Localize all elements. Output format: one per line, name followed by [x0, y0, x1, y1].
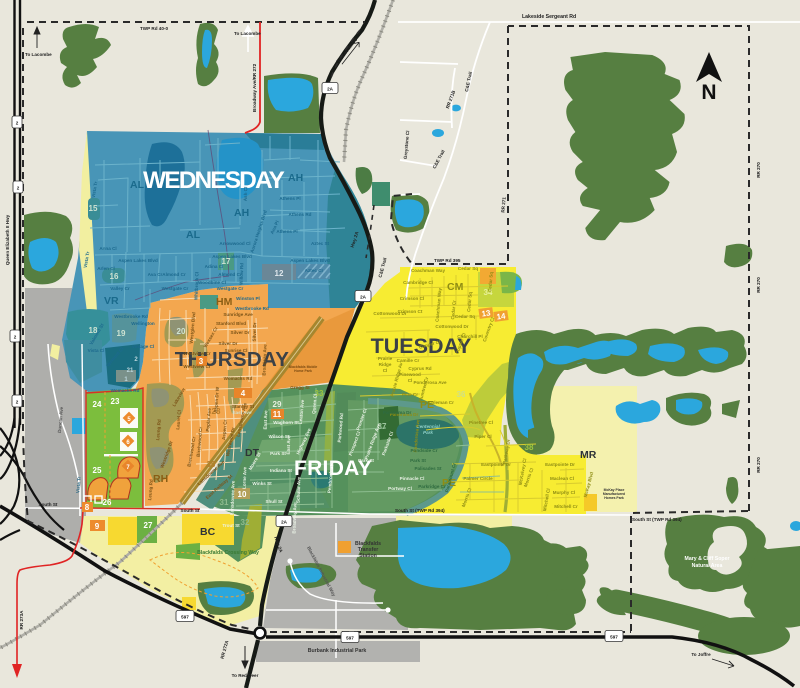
svg-text:Cottonwood Dr: Cottonwood Dr — [373, 311, 406, 316]
svg-text:Coleman Cr: Coleman Cr — [428, 400, 454, 405]
svg-text:Ava Cr: Ava Cr — [148, 272, 163, 277]
svg-text:Shull St: Shull St — [265, 499, 283, 504]
svg-text:RR 270: RR 270 — [756, 162, 761, 178]
svg-text:Aztec St: Aztec St — [311, 241, 330, 246]
svg-text:Silver Dr: Silver Dr — [252, 322, 258, 341]
svg-text:Silver Dr: Silver Dr — [231, 330, 250, 335]
svg-text:Maclean Cl: Maclean Cl — [550, 476, 574, 481]
svg-text:Murphy Cl: Murphy Cl — [553, 490, 575, 495]
svg-text:2: 2 — [17, 186, 20, 191]
svg-text:Womacks Rd: Womacks Rd — [224, 376, 253, 381]
svg-text:N: N — [701, 81, 716, 104]
svg-text:24: 24 — [93, 400, 102, 409]
svg-text:TWP Rd 40-0: TWP Rd 40-0 — [140, 26, 168, 31]
svg-text:Schular Ave: Schular Ave — [296, 476, 302, 503]
svg-text:AL: AL — [186, 229, 201, 241]
svg-text:Panorama Dr: Panorama Dr — [383, 410, 412, 415]
svg-text:Lakeside Sergeant Rd: Lakeside Sergeant Rd — [522, 14, 576, 20]
svg-text:23: 23 — [111, 397, 120, 406]
svg-text:11: 11 — [273, 410, 282, 419]
svg-text:Winston Pl: Winston Pl — [236, 296, 260, 301]
svg-text:38: 38 — [525, 443, 534, 452]
svg-text:Cedar Sq: Cedar Sq — [458, 266, 478, 271]
svg-text:Sunridge Ave: Sunridge Ave — [223, 312, 253, 317]
svg-text:Athens Rd: Athens Rd — [289, 212, 312, 217]
svg-text:Sunrise Cl: Sunrise Cl — [225, 348, 248, 353]
svg-text:Westgate Cr: Westgate Cr — [162, 286, 189, 291]
svg-text:Lorne Ave: Lorne Ave — [242, 466, 248, 489]
svg-text:Homes Park: Homes Park — [604, 496, 624, 500]
svg-text:Camille Cr: Camille Cr — [397, 358, 420, 363]
svg-text:15: 15 — [89, 204, 98, 213]
svg-text:Cottonwood Dr: Cottonwood Dr — [435, 324, 468, 329]
svg-text:2A: 2A — [327, 87, 334, 92]
svg-text:Coachman Way: Coachman Way — [411, 268, 445, 273]
svg-text:South St (TWP Rd 394): South St (TWP Rd 394) — [395, 508, 445, 513]
svg-text:AL: AL — [130, 179, 145, 191]
svg-text:Silver Dr: Silver Dr — [219, 341, 238, 346]
svg-text:Aspen Lakes Blvd: Aspen Lakes Blvd — [290, 258, 330, 263]
svg-text:Home Park: Home Park — [294, 369, 312, 373]
svg-text:Cl: Cl — [383, 368, 388, 373]
svg-text:To Lacombe: To Lacombe — [234, 31, 261, 36]
svg-text:Station: Station — [359, 553, 377, 559]
svg-text:2A: 2A — [360, 295, 367, 300]
svg-text:Piper Cl: Piper Cl — [474, 434, 491, 439]
svg-text:Adina Cl: Adina Cl — [205, 264, 224, 269]
svg-text:Westbrooke Rd: Westbrooke Rd — [235, 306, 269, 311]
svg-text:Aspen Lakes Blvd: Aspen Lakes Blvd — [212, 254, 252, 259]
svg-text:Vintage Cl: Vintage Cl — [132, 344, 154, 349]
svg-text:597: 597 — [346, 636, 354, 641]
svg-text:RH: RH — [153, 473, 168, 485]
svg-text:19: 19 — [117, 329, 126, 338]
svg-text:Wellington: Wellington — [131, 321, 155, 326]
svg-text:MR: MR — [580, 449, 597, 461]
svg-text:Woodbine Cl: Woodbine Cl — [198, 280, 226, 285]
svg-text:597: 597 — [181, 615, 189, 620]
svg-text:4: 4 — [241, 389, 246, 398]
svg-text:25: 25 — [93, 466, 102, 475]
svg-text:36: 36 — [457, 390, 466, 399]
svg-text:Westview Cr: Westview Cr — [183, 364, 210, 369]
svg-text:Ridge: Ridge — [379, 362, 392, 367]
svg-text:Park St: Park St — [358, 458, 374, 463]
svg-text:26: 26 — [103, 498, 112, 507]
svg-text:Anna Cl: Anna Cl — [99, 246, 116, 251]
svg-text:Aspen Lakes Blvd: Aspen Lakes Blvd — [118, 258, 158, 263]
svg-text:To Lacombe: To Lacombe — [25, 52, 52, 57]
svg-text:Almond Cr: Almond Cr — [162, 272, 186, 277]
svg-text:Prairie: Prairie — [378, 356, 393, 361]
svg-text:Pinnacle Cl: Pinnacle Cl — [400, 476, 425, 481]
svg-text:South St: South St — [181, 508, 200, 513]
svg-text:Womacks Rd: Womacks Rd — [111, 388, 140, 393]
svg-text:9: 9 — [95, 522, 100, 531]
svg-text:Cedar Sq: Cedar Sq — [455, 314, 475, 319]
svg-text:16: 16 — [110, 272, 119, 281]
svg-text:Cambridge Cl: Cambridge Cl — [403, 280, 433, 285]
svg-text:31: 31 — [220, 498, 229, 507]
svg-text:Palmer Circle: Palmer Circle — [463, 476, 493, 481]
svg-text:29: 29 — [273, 400, 282, 409]
svg-text:2A: 2A — [281, 520, 288, 525]
svg-text:Willow Rd: Willow Rd — [239, 263, 245, 285]
svg-text:Park St: Park St — [270, 451, 286, 456]
svg-text:Pinetree Cl: Pinetree Cl — [469, 420, 493, 425]
svg-text:12: 12 — [275, 269, 284, 278]
svg-text:Queen Elizabeth II Hwy: Queen Elizabeth II Hwy — [5, 214, 10, 265]
svg-text:Park St: Park St — [410, 458, 426, 463]
svg-text:Pondside Cr: Pondside Cr — [410, 448, 437, 453]
svg-text:South St: South St — [39, 502, 58, 507]
svg-text:Arrowwood Cl: Arrowwood Cl — [219, 241, 250, 246]
svg-text:Valley Cr: Valley Cr — [110, 286, 130, 291]
svg-text:Westview Cr: Westview Cr — [183, 351, 210, 356]
svg-text:8: 8 — [85, 503, 90, 512]
svg-text:Palisades St: Palisades St — [414, 466, 442, 471]
svg-text:RR 273A: RR 273A — [19, 610, 24, 630]
svg-text:Ponderosa Ave: Ponderosa Ave — [413, 380, 447, 385]
svg-text:Westgate Cr: Westgate Cr — [217, 286, 244, 291]
svg-text:Winks St: Winks St — [252, 481, 272, 486]
svg-text:WEDNESDAY: WEDNESDAY — [143, 167, 284, 194]
svg-text:Burbank Industrial Park: Burbank Industrial Park — [308, 648, 367, 654]
svg-text:Eastpointe Dr: Eastpointe Dr — [545, 462, 575, 467]
svg-text:RR 270: RR 270 — [756, 457, 761, 473]
svg-text:South St (TWP Rd 394): South St (TWP Rd 394) — [632, 517, 682, 522]
svg-text:Stanford Blvd: Stanford Blvd — [216, 321, 246, 326]
svg-text:27: 27 — [144, 521, 153, 530]
svg-text:14: 14 — [496, 311, 507, 321]
svg-text:Park: Park — [423, 430, 433, 435]
svg-text:2: 2 — [16, 400, 19, 405]
svg-text:Waghorn St: Waghorn St — [273, 420, 299, 425]
svg-text:Gregg St: Gregg St — [290, 385, 310, 390]
svg-text:East Ave: East Ave — [232, 410, 252, 415]
svg-text:Portway Cl: Portway Cl — [388, 486, 412, 491]
svg-text:Cyprus Rd: Cyprus Rd — [408, 366, 431, 371]
svg-text:To Red Deer: To Red Deer — [232, 673, 259, 678]
svg-text:2: 2 — [14, 335, 17, 340]
svg-text:To Joffre: To Joffre — [691, 652, 711, 657]
svg-text:2: 2 — [16, 121, 19, 126]
svg-text:Natural Area: Natural Area — [692, 563, 723, 569]
svg-text:Pine Cr: Pine Cr — [402, 392, 418, 397]
svg-text:BC: BC — [200, 526, 216, 538]
svg-text:Trout St: Trout St — [222, 523, 240, 528]
svg-text:Athens Pl: Athens Pl — [276, 229, 297, 234]
svg-text:32: 32 — [241, 518, 250, 527]
svg-text:RR 270: RR 270 — [756, 277, 761, 293]
svg-text:East Ave: East Ave — [263, 410, 269, 430]
svg-text:AH: AH — [234, 207, 249, 219]
svg-text:Mitchell Cr: Mitchell Cr — [554, 504, 578, 509]
svg-text:Pinewood: Pinewood — [399, 372, 421, 377]
svg-text:Cl: Cl — [408, 378, 413, 383]
svg-text:Vista Cl: Vista Cl — [88, 348, 105, 353]
svg-text:Athens Pl: Athens Pl — [279, 196, 300, 201]
svg-text:Broadway Ave/RR 272: Broadway Ave/RR 272 — [252, 63, 257, 112]
svg-text:Westbrooke Rd: Westbrooke Rd — [114, 314, 148, 319]
svg-text:Parkridge Cr: Parkridge Cr — [418, 484, 446, 489]
svg-text:East Ave: East Ave — [286, 435, 292, 455]
svg-text:AH: AH — [288, 172, 303, 184]
svg-text:TWP Rd 395: TWP Rd 395 — [434, 258, 461, 263]
svg-text:Ash Cl: Ash Cl — [243, 187, 249, 202]
svg-text:Blackfalds Crossing Way: Blackfalds Crossing Way — [197, 550, 259, 556]
svg-text:CM: CM — [447, 281, 464, 293]
svg-text:HM: HM — [216, 296, 233, 308]
svg-text:Crimson Cl: Crimson Cl — [400, 296, 425, 301]
svg-text:597: 597 — [610, 635, 618, 640]
svg-text:21: 21 — [127, 368, 134, 374]
svg-text:10: 10 — [238, 490, 247, 499]
svg-text:Indiana St: Indiana St — [270, 468, 292, 473]
svg-text:Aztec Cr: Aztec Cr — [305, 268, 324, 273]
svg-text:VR: VR — [104, 295, 119, 307]
svg-text:Whitbrock Cl: Whitbrock Cl — [194, 272, 200, 300]
svg-text:20: 20 — [177, 327, 186, 336]
svg-text:Arlen Cl: Arlen Cl — [97, 266, 115, 271]
svg-text:Mary & Cliff Soper: Mary & Cliff Soper — [685, 556, 730, 562]
